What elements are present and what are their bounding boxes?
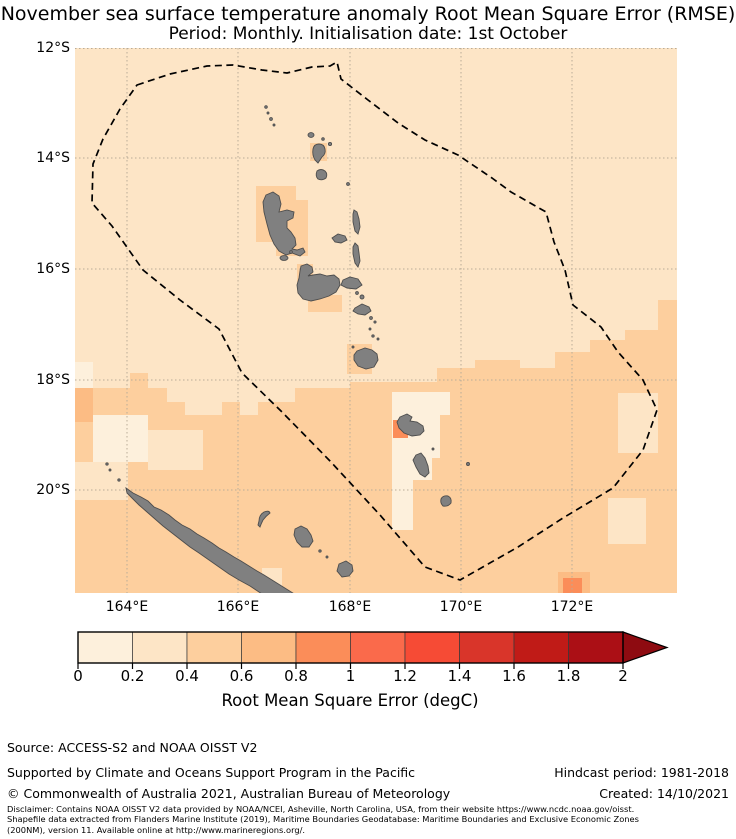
colorbar-tick-label: 1.2	[383, 668, 427, 684]
copyright-text: © Commonwealth of Australia 2021, Austra…	[7, 786, 450, 801]
colorbar-segment	[569, 632, 624, 663]
island	[280, 256, 288, 261]
colorbar-segment	[296, 632, 351, 663]
island	[432, 448, 434, 450]
colorbar-tick-label: 1.4	[438, 668, 482, 684]
island	[377, 338, 379, 340]
island	[369, 328, 371, 330]
island	[118, 479, 120, 481]
island	[265, 106, 268, 109]
island	[308, 133, 314, 138]
island	[270, 118, 273, 121]
island	[360, 295, 364, 299]
colorbar-segment	[78, 632, 133, 663]
island	[441, 496, 451, 506]
island	[356, 292, 359, 295]
lon-tick-label: 168°E	[320, 600, 380, 614]
plot-canvas: November sea surface temperature anomaly…	[0, 0, 736, 839]
lon-tick-label: 166°E	[208, 600, 268, 614]
colorbar-segment	[187, 632, 242, 663]
lat-tick-label: 12°S	[2, 41, 70, 55]
island	[106, 463, 108, 465]
map-panel	[75, 48, 677, 593]
disclaimer-line: Shapefile data extracted from Flanders M…	[7, 814, 729, 824]
island	[328, 142, 331, 145]
colorbar-tick-label: 0.6	[220, 668, 264, 684]
created-date-text: Created: 14/10/2021	[599, 786, 729, 801]
disclaimer-line: (200NM), version 11. Available online at…	[7, 825, 729, 835]
colorbar-segment	[514, 632, 569, 663]
island	[467, 463, 470, 466]
colorbar-tick-label: 0	[56, 668, 100, 684]
colorbar-tick-label: 0.4	[165, 668, 209, 684]
island	[322, 138, 325, 141]
lat-tick-label: 20°S	[2, 483, 70, 497]
lon-tick-label: 172°E	[542, 600, 602, 614]
plot-subtitle: Period: Monthly. Initialisation date: 1s…	[169, 24, 568, 44]
plot-title: November sea surface temperature anomaly…	[1, 3, 736, 25]
island	[374, 321, 376, 323]
hindcast-period-text: Hindcast period: 1981-2018	[554, 765, 729, 780]
colorbar-segment	[405, 632, 460, 663]
island	[290, 251, 293, 254]
disclaimer-text: Disclaimer: Contains NOAA OISST V2 data …	[7, 804, 729, 835]
island	[319, 550, 321, 552]
disclaimer-line: Disclaimer: Contains NOAA OISST V2 data …	[7, 804, 729, 814]
colorbar-tick-label: 0.8	[274, 668, 318, 684]
island	[347, 183, 350, 186]
island	[370, 317, 373, 320]
source-text: Source: ACCESS-S2 and NOAA OISST V2	[7, 740, 257, 755]
colorbar-title: Root Mean Square Error (degC)	[0, 691, 700, 710]
colorbar-segment	[351, 632, 406, 663]
colorbar-segment	[133, 632, 188, 663]
lat-tick-label: 14°S	[2, 151, 70, 165]
colorbar-tick-label: 2	[601, 668, 645, 684]
lon-tick-label: 170°E	[431, 600, 491, 614]
colorbar-extend-arrow	[623, 632, 667, 663]
island	[267, 112, 269, 114]
island	[109, 469, 111, 471]
supported-by-text: Supported by Climate and Oceans Support …	[7, 765, 415, 780]
lon-tick-label: 164°E	[97, 600, 157, 614]
island	[273, 124, 275, 126]
colorbar-tick-label: 1.6	[492, 668, 536, 684]
lat-tick-label: 18°S	[2, 373, 70, 387]
colorbar-tick-label: 1	[329, 668, 373, 684]
island	[326, 556, 328, 558]
lat-tick-label: 16°S	[2, 262, 70, 276]
colorbar-segment	[242, 632, 297, 663]
colorbar-tick-label: 1.8	[547, 668, 591, 684]
colorbar-tick-label: 0.2	[111, 668, 155, 684]
island	[316, 170, 327, 180]
island	[372, 335, 374, 337]
colorbar-segment	[460, 632, 515, 663]
island	[352, 346, 354, 348]
